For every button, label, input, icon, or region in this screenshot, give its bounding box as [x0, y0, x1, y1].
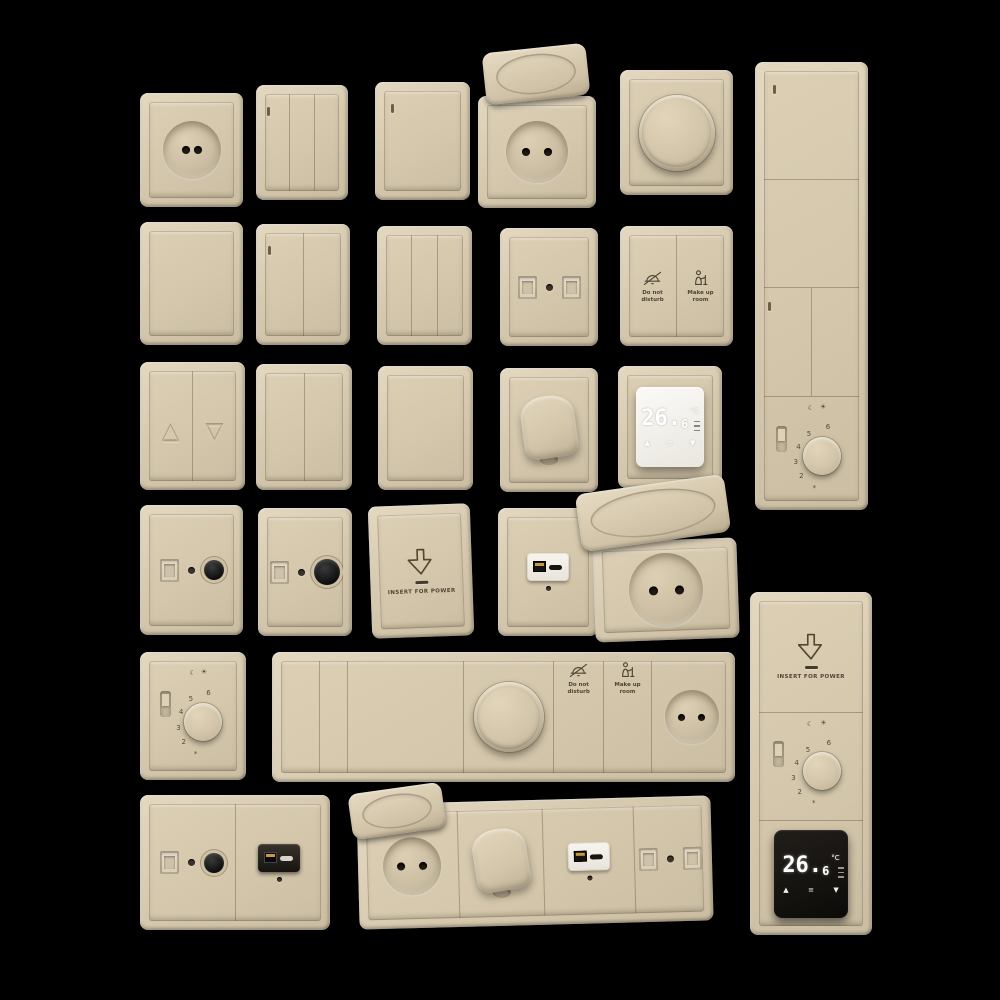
switch-1gang-indicator [375, 82, 470, 200]
switch-rocker [304, 373, 344, 481]
button-label-line: disturb [641, 297, 663, 304]
make-up-room-button: Make up room [604, 661, 651, 695]
switch-rocker [303, 233, 342, 336]
data-socket-face [639, 847, 703, 872]
usb-black-section [235, 804, 321, 921]
dial-number: 4 [179, 708, 183, 716]
switch-rocker [265, 373, 304, 481]
frost-mark: * [812, 484, 816, 492]
usb-a-port [533, 561, 546, 572]
thermostat-buttons: ▲ ≡ ▼ [645, 439, 696, 447]
menu-button: ≡ [667, 439, 673, 447]
switch-rocker-section [764, 179, 859, 288]
temperature-decimal: 6 [822, 865, 829, 877]
rocker-group [149, 231, 234, 336]
socket-face [149, 102, 234, 198]
hotel-panel-vertical: INSERT FOR POWER ☾ ☀ 65432 * 26. 6 °C ▲ … [750, 592, 872, 935]
socket-well [665, 690, 719, 744]
socket-well [506, 121, 568, 183]
switch-rocker [811, 288, 859, 396]
switch-rocker [386, 235, 411, 336]
thermostat-module: 26. 6 °C ▲ ≡ ▼ [636, 387, 705, 466]
sun-icon: ☀ [820, 403, 826, 411]
temperature-value: 26. [641, 408, 681, 430]
tv-section [149, 804, 235, 921]
dial-number: 3 [793, 458, 797, 466]
dnd-section: Do not disturb [553, 661, 603, 773]
data-jack [683, 847, 703, 870]
usb-a-port [574, 850, 587, 861]
dial-number: 2 [182, 738, 186, 746]
tv-face [149, 514, 234, 626]
keycard-face: INSERT FOR POWER [759, 601, 863, 712]
moon-icon: ☾ [808, 404, 814, 412]
pilot-hole [298, 569, 305, 576]
menu-button: ≡ [808, 886, 814, 894]
usb-a-port [264, 852, 277, 863]
usb-c-port [549, 565, 562, 570]
rocker-group [265, 94, 339, 191]
tv-usb-combo [140, 795, 330, 930]
vent-slots [838, 867, 844, 878]
data-jack [160, 851, 179, 874]
dial-thermostat-face: ☾ ☀ 65432 * [764, 397, 859, 502]
dial-number: 3 [176, 724, 180, 732]
socket-well [383, 836, 442, 895]
switch-rocker [411, 235, 437, 336]
data-jack [562, 276, 581, 299]
thermostat-knob [184, 703, 222, 741]
switch-rocker [764, 288, 811, 396]
do-not-disturb-button: Do not disturb [629, 235, 676, 337]
dimmer-knob [639, 95, 715, 171]
blinds-up-rocker: △ [149, 371, 192, 481]
dial-thermostat-face: ☾ ☀ 65432 * [149, 661, 237, 771]
dial-number: 5 [189, 695, 193, 703]
data-socket-double [500, 228, 598, 346]
mode-slider [160, 691, 171, 717]
usb-c-port [590, 854, 603, 859]
do-not-disturb-button: Do not disturb [554, 661, 603, 695]
socket-flip-lid [478, 96, 596, 208]
mode-slider [773, 741, 784, 767]
switch-rocker [387, 375, 464, 481]
socket-flip-lid-large [592, 538, 739, 643]
socket-1gang [140, 93, 243, 207]
temperature-display: 26. 6 °C [641, 408, 698, 430]
usb-face [542, 806, 635, 915]
usb-face [236, 804, 321, 921]
data-face [509, 237, 589, 337]
rocker-group [265, 233, 341, 336]
button-label-line: room [692, 297, 708, 304]
switch-pair-section [764, 287, 859, 396]
tv-face [149, 804, 235, 921]
temperature-unit: °C [690, 408, 698, 415]
rocker-group [764, 288, 859, 396]
make-up-room-maid-icon [617, 661, 638, 679]
switch-rocker [437, 235, 463, 336]
dial-number: 4 [796, 443, 800, 451]
coax-connector [204, 560, 224, 580]
card-slot [415, 580, 428, 583]
indicator-mark [391, 104, 394, 113]
pilot-hole [188, 567, 195, 574]
up-arrow-button: ▲ [645, 439, 650, 447]
keycard-label: INSERT FOR POWER [388, 587, 456, 595]
down-arrow-button: ▼ [690, 439, 695, 447]
dial-number: 4 [794, 759, 798, 767]
wall-devices-scene: ☾ ☀ 65432 * Do not disturb Make up room … [0, 0, 1000, 1000]
do-not-disturb-bell-icon [642, 269, 663, 287]
tv-socket-face [270, 559, 340, 585]
temperature-display: 26. 6 °C [782, 855, 839, 877]
dial-number: 6 [827, 739, 831, 747]
temperature-unit: °C [831, 855, 839, 862]
make-up-room-button: Make up room [676, 235, 724, 337]
usb-module [258, 844, 300, 872]
rocker-group [384, 91, 461, 191]
down-triangle: ▽ [206, 419, 224, 445]
dimmer-section [463, 661, 553, 773]
rocker-group: △ ▽ [149, 371, 236, 481]
pilot-hole [546, 586, 551, 591]
dnd-mur-switch: Do not disturb Make up room [620, 226, 733, 346]
switch-1gang [378, 366, 473, 490]
dial-thermostat-section: ☾ ☀ 65432 * [759, 712, 863, 820]
sun-icon: ☀ [201, 668, 207, 676]
switch-rocker-section [764, 71, 859, 179]
socket-well [628, 552, 705, 629]
thermostat-knob [803, 752, 841, 790]
hotel-strip-panel: Do not disturb Make up room [272, 652, 735, 782]
frost-mark: * [812, 799, 816, 807]
socket-section [651, 661, 726, 773]
pilot-hole [546, 284, 553, 291]
thermostat-face: 26. 6 °C ▲ ≡ ▼ [759, 821, 863, 926]
data-face [634, 805, 704, 914]
make-up-room-maid-icon [690, 269, 711, 287]
keycard-power-switch: INSERT FOR POWER [368, 503, 475, 638]
frost-mark: * [194, 750, 198, 758]
socket-face [652, 661, 726, 773]
switch-2gang-indicator [256, 224, 350, 345]
up-triangle: △ [162, 419, 180, 445]
thermostat-module: 26. 6 °C ▲ ≡ ▼ [774, 830, 849, 918]
switch-rocker [289, 94, 314, 191]
moon-icon: ☾ [807, 720, 813, 728]
dial-number: 6 [826, 423, 830, 431]
dial-number: 5 [806, 746, 810, 754]
tv-socket-face [160, 851, 224, 874]
up-arrow-button: ▲ [783, 886, 788, 894]
data-jack [518, 276, 537, 299]
insert-arrow-icon [798, 633, 824, 661]
indicator-mark [768, 302, 771, 311]
mode-slider [776, 426, 787, 452]
cable-outlet-face [509, 377, 589, 483]
dial-number: 2 [799, 472, 803, 480]
coax-connector [314, 559, 340, 585]
pilot-hole [188, 859, 195, 866]
rocker-group [386, 235, 463, 336]
usb-section [541, 806, 635, 915]
dimmer-face [629, 79, 724, 186]
cable-section [456, 809, 544, 918]
data-section [633, 805, 704, 914]
temperature-decimal: 6 [681, 418, 688, 430]
dial-thermostat: ☾ ☀ 65432 * [140, 652, 246, 780]
indicator-mark [773, 85, 776, 94]
socket-face [487, 105, 587, 199]
switch-rocker [314, 94, 339, 191]
keycard-face: INSERT FOR POWER [377, 513, 465, 630]
thermostat-face: 26. 6 °C ▲ ≡ ▼ [627, 375, 713, 479]
thermostat-black-section: 26. 6 °C ▲ ≡ ▼ [759, 820, 863, 926]
socket-face [602, 547, 731, 633]
blinds-down-rocker: ▽ [192, 371, 236, 481]
keycard-label: INSERT FOR POWER [777, 674, 845, 680]
flip-lid [482, 43, 591, 106]
switch-rocker [149, 231, 234, 336]
dial-thermostat-section: ☾ ☀ 65432 * [764, 396, 859, 502]
blinds-switch: △ ▽ [140, 362, 245, 490]
do-not-disturb-bell-icon [568, 661, 589, 679]
rocker-group: Do not disturb Make up room [629, 235, 724, 337]
switch-rocker-section [347, 661, 464, 773]
cable-spout [469, 825, 532, 895]
data-jack [270, 561, 289, 584]
moon-icon: ☾ [189, 669, 195, 677]
switch-rocker [265, 233, 303, 336]
data-jack [639, 848, 659, 871]
coax-connector [204, 853, 224, 873]
indicator-mark [268, 246, 271, 255]
switch-3gang-plain [377, 226, 472, 345]
thermostat-knob [803, 437, 841, 475]
usb-module [527, 553, 569, 581]
cable-outlet-face [457, 809, 544, 918]
button-label-line: room [619, 689, 635, 696]
pilot-hole [587, 875, 592, 880]
vent-slots [694, 421, 700, 432]
card-slot [805, 666, 818, 669]
switch-rocker-section [319, 661, 347, 773]
sun-icon: ☀ [820, 719, 826, 727]
cable-outlet [500, 368, 598, 492]
mur-section: Make up room [603, 661, 651, 773]
usb-c-port [280, 856, 293, 861]
data-socket-face [518, 276, 581, 299]
digital-thermostat-white: 26. 6 °C ▲ ≡ ▼ [618, 366, 722, 488]
data-jack [160, 559, 179, 582]
down-arrow-button: ▼ [833, 886, 838, 894]
usb-module [568, 842, 611, 871]
tv-coax-socket [140, 505, 243, 635]
dial-number: 6 [206, 689, 210, 697]
insert-arrow-icon [407, 547, 434, 576]
button-label-line: disturb [568, 689, 590, 696]
tv-socket-face [160, 559, 224, 582]
dial-number: 5 [807, 430, 811, 438]
socket-well [163, 121, 221, 179]
dial-thermostat-face: ☾ ☀ 65432 * [759, 713, 863, 820]
indicator-mark [267, 107, 270, 116]
switch-1gang-plain [140, 222, 243, 345]
rocker-group [387, 375, 464, 481]
dial-number: 2 [797, 788, 801, 796]
dimmer-face [464, 661, 553, 773]
switch-rocker-section [281, 661, 319, 773]
tv-face [267, 517, 343, 627]
thermostat-buttons: ▲ ≡ ▼ [783, 886, 838, 894]
pilot-hole [667, 855, 674, 862]
usb-face [507, 517, 589, 627]
dimmer-knob [474, 682, 544, 752]
switch-2gang [256, 364, 352, 490]
switch-rocker [265, 94, 289, 191]
dial-number: 3 [791, 774, 795, 782]
cable-spout [518, 392, 580, 461]
rotary-dimmer [620, 70, 733, 195]
temperature-value: 26. [782, 855, 822, 877]
switch-rocker [384, 91, 461, 191]
rocker-group [265, 373, 343, 481]
multi-switch-panel-vertical: ☾ ☀ 65432 * [755, 62, 868, 510]
pilot-hole [277, 877, 282, 882]
switch-3gang-indicator [256, 85, 348, 200]
keycard-section: INSERT FOR POWER [759, 601, 863, 712]
tv-coax-socket-large [258, 508, 352, 636]
